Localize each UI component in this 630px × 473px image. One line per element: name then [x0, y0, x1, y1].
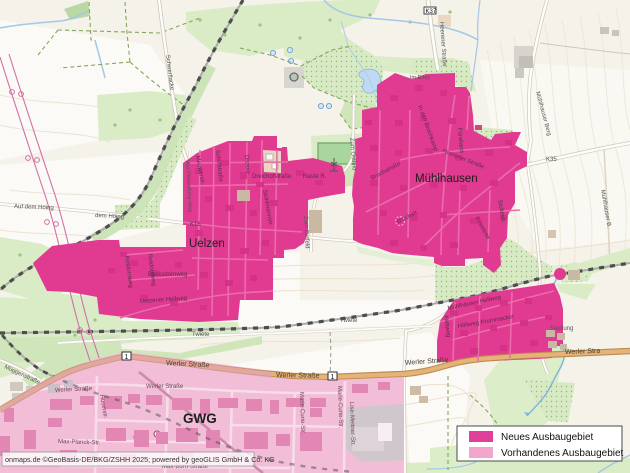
svg-text:Twiete: Twiete	[340, 318, 358, 324]
svg-text:K37: K37	[426, 9, 437, 15]
svg-text:Werler Straße: Werler Straße	[276, 372, 320, 380]
svg-text:GWG: GWG	[183, 411, 217, 426]
svg-text:K16: K16	[190, 222, 201, 228]
svg-text:K35: K35	[546, 157, 557, 163]
svg-text:Raste R.: Raste R.	[303, 174, 327, 180]
svg-text:Uelzen: Uelzen	[189, 238, 225, 250]
svg-text:Im Erley: Im Erley	[410, 75, 430, 81]
svg-text:Mühlhausen: Mühlhausen	[415, 173, 478, 185]
svg-text:Werler Stra: Werler Stra	[565, 348, 601, 356]
svg-text:Dreichofstraße: Dreichofstraße	[252, 174, 292, 180]
svg-text:onmaps.de ©GeoBasis-DE/BKG/ZSH: onmaps.de ©GeoBasis-DE/BKG/ZSHH 2025; po…	[5, 455, 275, 464]
svg-text:1: 1	[331, 374, 335, 381]
svg-text:1: 1	[125, 354, 129, 361]
svg-text:Siedlung: Siedlung	[550, 326, 573, 332]
svg-text:Neues Ausbaugebiet: Neues Ausbaugebiet	[501, 432, 594, 443]
svg-text:Werler Straße: Werler Straße	[146, 384, 184, 390]
svg-text:Vorhandenes Ausbaugebiet: Vorhandenes Ausbaugebiet	[501, 448, 624, 459]
svg-text:Twiete: Twiete	[192, 332, 210, 338]
